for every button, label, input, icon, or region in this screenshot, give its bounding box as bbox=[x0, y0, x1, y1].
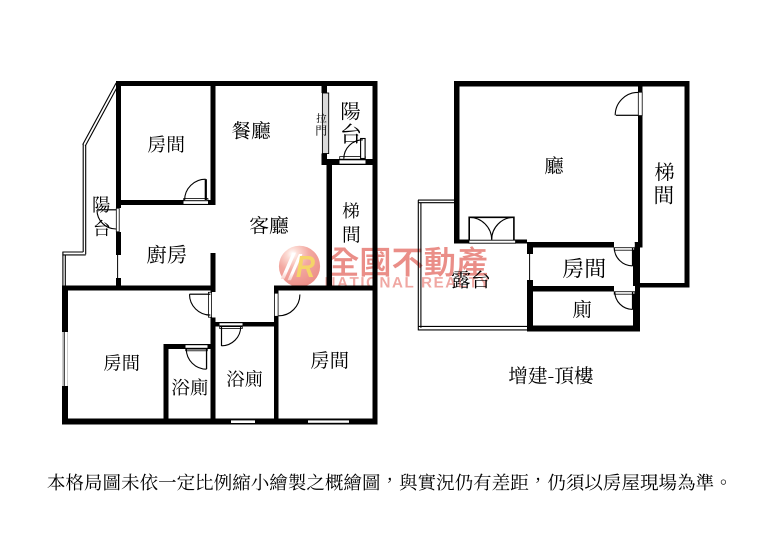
svg-text:R: R bbox=[296, 250, 315, 284]
